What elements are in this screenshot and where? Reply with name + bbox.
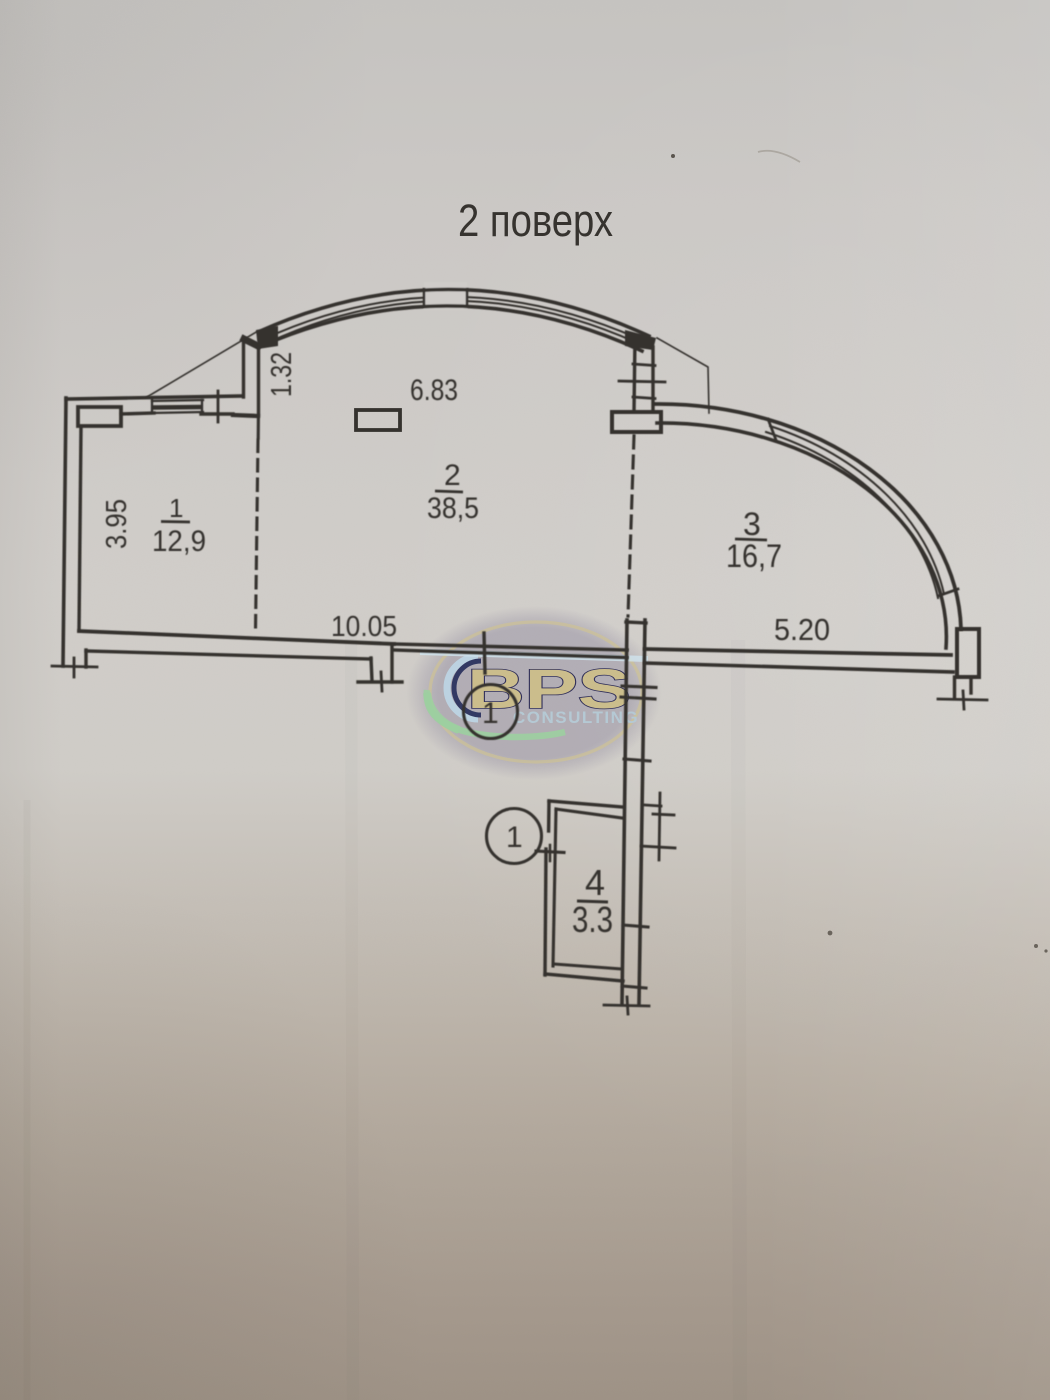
svg-text:1: 1 (169, 493, 183, 523)
svg-text:1: 1 (506, 821, 523, 854)
svg-text:3.3: 3.3 (572, 899, 613, 940)
svg-text:16,7: 16,7 (726, 538, 782, 574)
svg-text:10.05: 10.05 (331, 611, 397, 643)
svg-text:38,5: 38,5 (427, 492, 479, 525)
svg-text:1.32: 1.32 (266, 352, 298, 397)
svg-text:12,9: 12,9 (152, 525, 206, 558)
svg-text:3: 3 (743, 506, 761, 542)
svg-text:4: 4 (585, 862, 605, 903)
svg-text:CONSULTING: CONSULTING (513, 708, 639, 727)
svg-text:6.83: 6.83 (410, 374, 458, 407)
svg-text:5.20: 5.20 (774, 612, 830, 647)
svg-text:2 поверх: 2 поверх (458, 195, 613, 246)
svg-text:2: 2 (444, 459, 461, 492)
svg-text:1: 1 (482, 697, 499, 730)
svg-text:3.95: 3.95 (101, 499, 133, 549)
